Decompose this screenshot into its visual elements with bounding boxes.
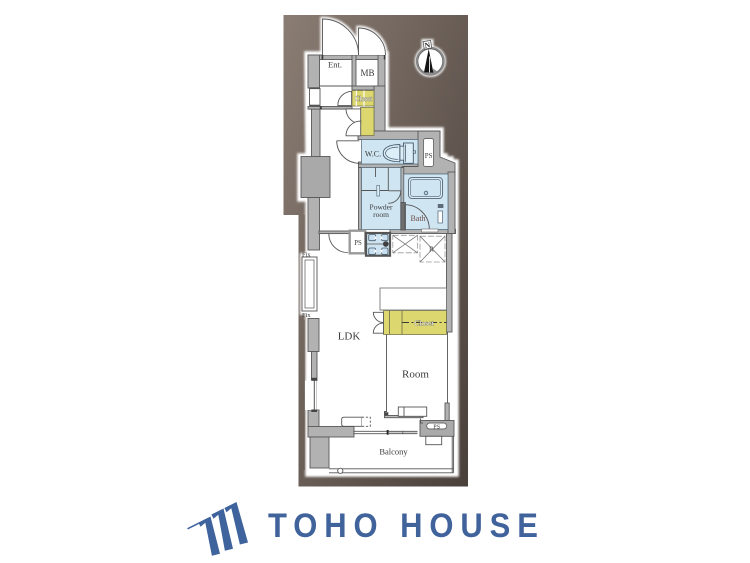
svg-text:Closet: Closet: [414, 319, 434, 328]
svg-text:PS: PS: [433, 423, 440, 430]
svg-text:Room: Room: [402, 369, 429, 381]
svg-text:MB: MB: [360, 68, 374, 78]
svg-text:Bath: Bath: [410, 214, 425, 223]
svg-text:PS: PS: [354, 240, 362, 247]
svg-text:R: R: [429, 245, 434, 254]
svg-text:Closet: Closet: [355, 96, 372, 103]
svg-text:PS: PS: [425, 152, 433, 160]
svg-text:Fix: Fix: [302, 251, 311, 258]
svg-text:Ent.: Ent.: [328, 60, 342, 70]
svg-text:Fix: Fix: [302, 312, 311, 319]
svg-text:LDK: LDK: [338, 331, 361, 343]
svg-text:Balcony: Balcony: [379, 447, 408, 457]
svg-text:room: room: [373, 210, 389, 219]
svg-text:W.C.: W.C.: [365, 150, 381, 159]
svg-text:TOHO HOUSE: TOHO HOUSE: [268, 506, 545, 544]
